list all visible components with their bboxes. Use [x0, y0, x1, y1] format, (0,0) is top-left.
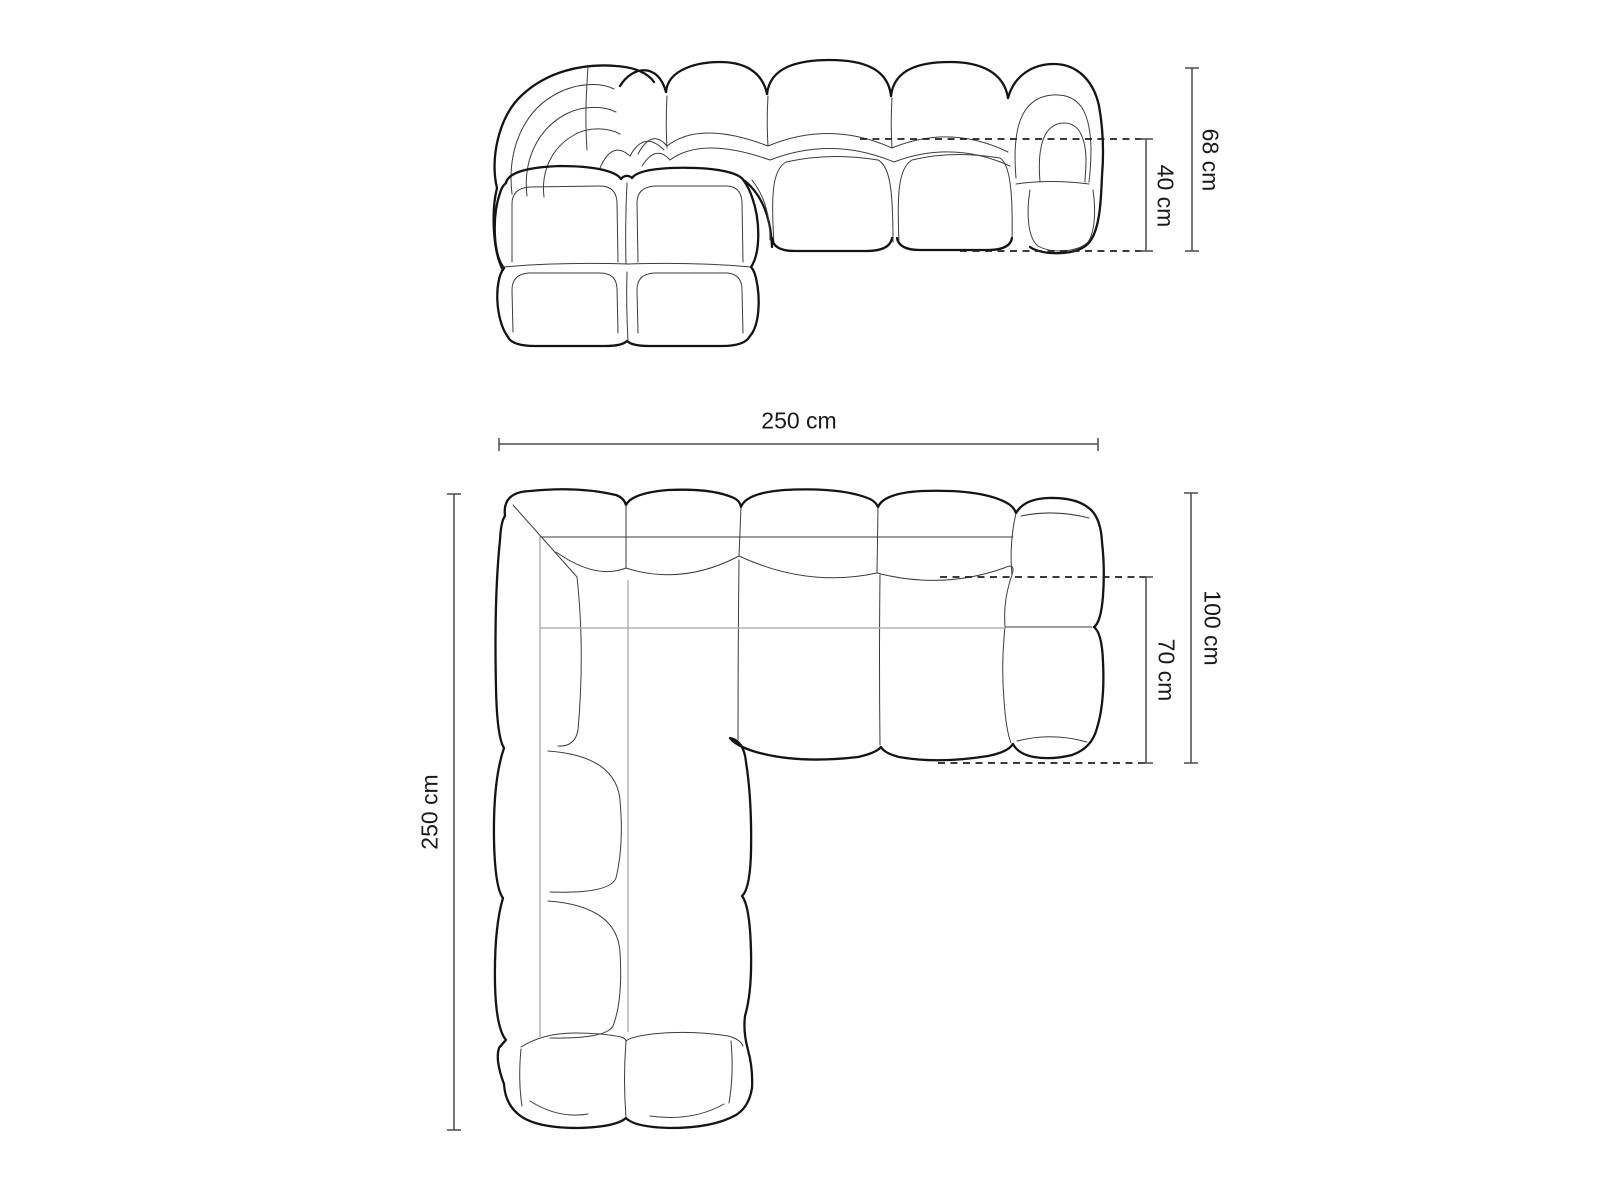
top-view-seams — [513, 505, 1092, 1118]
dimension-line-width — [499, 438, 1098, 451]
front-seat-cushions — [745, 154, 1012, 251]
seat-depth-label: 70 cm — [1155, 639, 1178, 702]
dimension-line-depth — [447, 494, 461, 1130]
dimension-line-chaise-depth — [1184, 493, 1198, 763]
dimension-line-seat-depth — [1139, 577, 1153, 763]
front-view-dimensions — [860, 68, 1199, 251]
front-right-armrest — [1008, 64, 1103, 253]
diagram-canvas — [0, 0, 1600, 1200]
top-view-dimensions — [447, 438, 1198, 1130]
top-view-guide-lines — [540, 537, 1005, 1038]
dimension-line-seat-height — [1139, 139, 1153, 251]
total-height-label: 68 cm — [1199, 129, 1222, 192]
front-view-drawing — [494, 60, 1103, 346]
width-label: 250 cm — [761, 410, 836, 433]
seat-height-label: 40 cm — [1154, 165, 1177, 228]
front-corner-backrest-stack — [494, 65, 654, 270]
front-chaise — [495, 166, 759, 346]
depth-label: 250 cm — [419, 774, 442, 849]
top-view-outline — [494, 489, 1104, 1128]
front-back-cushions — [600, 60, 1010, 168]
sofa-dimension-diagram: 68 cm 40 cm 250 cm 250 cm 100 cm 70 cm — [0, 0, 1600, 1200]
top-view-drawing — [494, 489, 1104, 1128]
chaise-depth-label: 100 cm — [1201, 590, 1224, 665]
